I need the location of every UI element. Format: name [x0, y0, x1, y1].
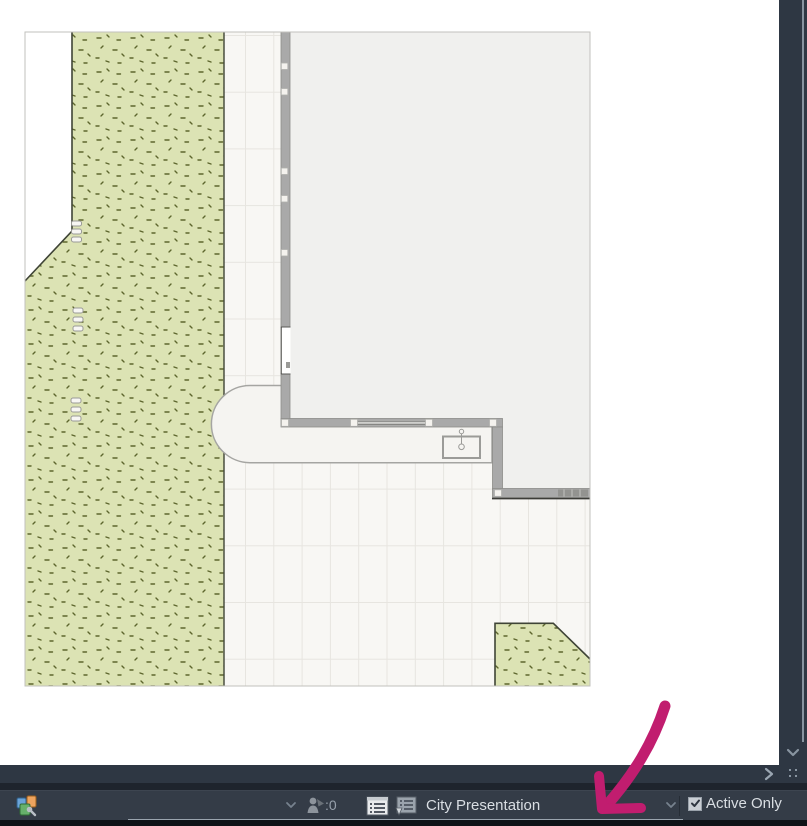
window-bottom-edge	[0, 820, 807, 826]
teamwork-changes-count: :0	[325, 797, 337, 813]
layout-dropdown-chevron-icon[interactable]	[664, 800, 678, 810]
chevron-down-icon[interactable]	[284, 800, 298, 810]
vertical-scrollbar[interactable]	[779, 0, 807, 765]
check-icon	[690, 798, 701, 809]
left-wall-lower	[281, 374, 290, 419]
quick-options-icon[interactable]	[16, 795, 38, 817]
teamwork-person-icon[interactable]	[306, 796, 326, 814]
expand-pane-icon[interactable]	[761, 766, 777, 782]
left-wall-door-opening	[281, 327, 291, 374]
bottom-wall-door-symbol	[357, 420, 427, 425]
statusbar-separator	[0, 783, 807, 790]
layout-name-field[interactable]: City Presentation	[426, 797, 656, 814]
status-bar: :0 City Presentation Active Only	[0, 790, 807, 820]
scroll-down-icon[interactable]	[784, 747, 802, 759]
left-wall-upper	[281, 32, 290, 327]
list-view-icon[interactable]	[366, 796, 389, 816]
layout-book-icon[interactable]	[394, 796, 417, 816]
vertical-scrollbar-thumb[interactable]	[802, 0, 804, 742]
active-only-label: Active Only	[706, 795, 782, 812]
horizontal-scrollbar-row[interactable]	[0, 765, 807, 783]
drawing-sheet	[25, 32, 590, 686]
bottom-right-window-symbol	[558, 490, 588, 497]
statusbar-vertical-divider	[679, 796, 680, 816]
active-only-toggle[interactable]: Active Only	[688, 795, 782, 812]
active-only-checkbox[interactable]	[688, 797, 702, 811]
right-step-wall	[493, 427, 503, 489]
resize-grip-icon[interactable]	[789, 769, 801, 780]
floor-plan-viewport[interactable]	[0, 0, 807, 765]
